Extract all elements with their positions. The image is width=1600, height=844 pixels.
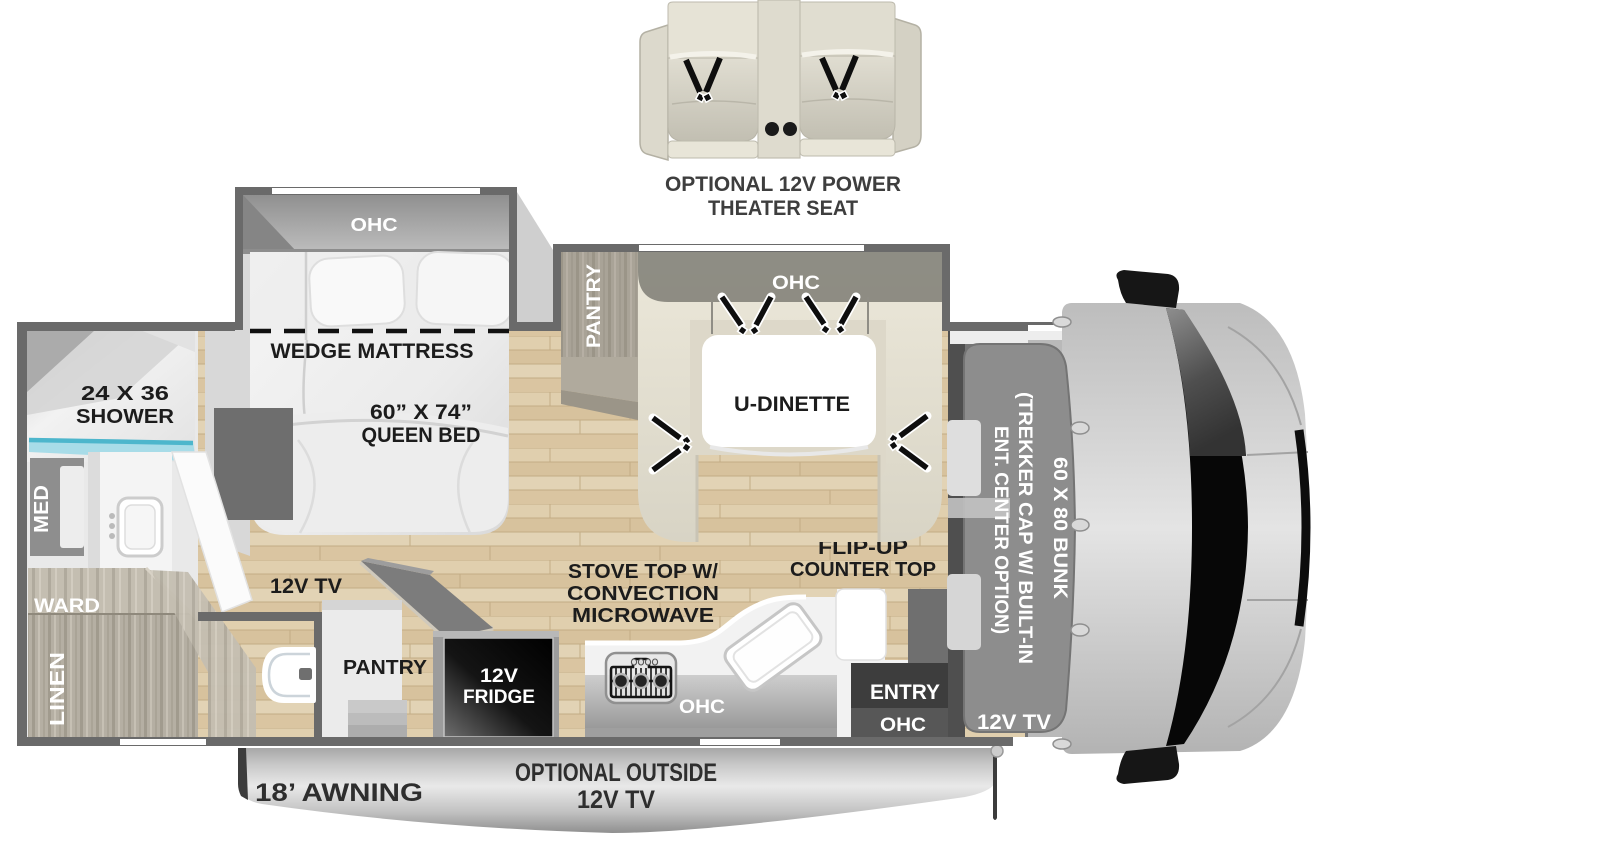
svg-text:PANTRY: PANTRY	[584, 264, 605, 348]
svg-text:12V: 12V	[480, 665, 518, 687]
svg-text:THEATER SEAT: THEATER SEAT	[708, 197, 858, 220]
svg-text:OPTIONAL OUTSIDE: OPTIONAL OUTSIDE	[515, 759, 717, 787]
svg-text:MED: MED	[31, 485, 53, 533]
svg-text:LINEN: LINEN	[47, 652, 69, 726]
svg-text:(TREKKER CAP W/ BUILT-IN: (TREKKER CAP W/ BUILT-IN	[1014, 392, 1035, 664]
svg-text:ENT. CENTER OPTION): ENT. CENTER OPTION)	[990, 426, 1011, 634]
svg-text:18’ AWNING: 18’ AWNING	[255, 779, 423, 807]
svg-text:FRIDGE: FRIDGE	[463, 686, 535, 708]
svg-text:OHC: OHC	[772, 273, 820, 294]
svg-text:OHC: OHC	[351, 215, 398, 235]
svg-text:U-DINETTE: U-DINETTE	[734, 393, 850, 416]
svg-text:COUNTER TOP: COUNTER TOP	[790, 559, 936, 581]
svg-text:12V TV: 12V TV	[977, 711, 1051, 734]
svg-text:MICROWAVE: MICROWAVE	[572, 605, 714, 627]
svg-text:OPTIONAL 12V POWER: OPTIONAL 12V POWER	[665, 173, 901, 196]
svg-text:24 X 36: 24 X 36	[81, 383, 169, 405]
svg-text:STOVE TOP W/: STOVE TOP W/	[568, 561, 718, 583]
svg-text:QUEEN BED: QUEEN BED	[362, 424, 481, 447]
svg-text:60” X 74”: 60” X 74”	[370, 401, 472, 424]
svg-text:60 X 80 BUNK: 60 X 80 BUNK	[1049, 457, 1070, 599]
svg-text:WEDGE MATTRESS: WEDGE MATTRESS	[271, 340, 474, 363]
svg-text:SHOWER: SHOWER	[76, 406, 175, 428]
svg-text:OHC: OHC	[880, 715, 926, 736]
svg-text:ENTRY: ENTRY	[870, 681, 940, 704]
svg-text:CONVECTION: CONVECTION	[567, 583, 719, 605]
svg-text:12V TV: 12V TV	[270, 575, 342, 598]
svg-text:OHC: OHC	[679, 697, 725, 718]
svg-text:WARD: WARD	[34, 596, 100, 617]
svg-text:PANTRY: PANTRY	[343, 657, 428, 679]
svg-text:12V TV: 12V TV	[577, 786, 655, 814]
